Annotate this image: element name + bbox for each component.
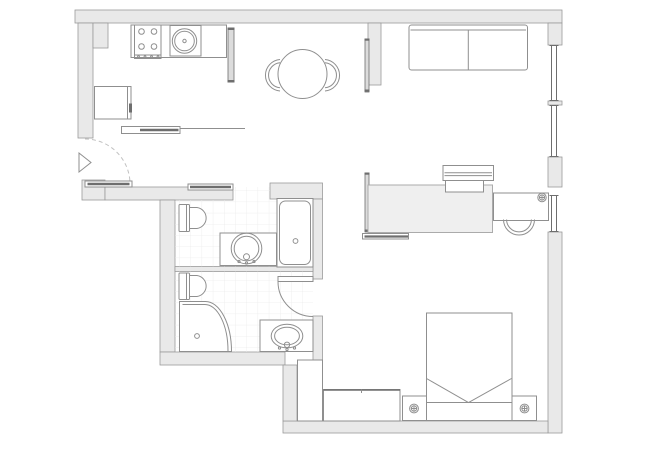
wall-step-left — [283, 365, 297, 421]
nightstand-left — [403, 396, 427, 421]
office-chair — [504, 220, 535, 236]
wall-bathroom-top-right — [270, 183, 323, 199]
wall-right-mid — [548, 157, 562, 187]
entrance-triangle-marker — [79, 153, 91, 172]
window-2 — [550, 106, 559, 157]
low-console — [363, 234, 409, 240]
toilet-tank — [179, 205, 190, 232]
bed-outline — [427, 313, 513, 421]
dining-area — [265, 50, 339, 99]
dresser-body — [324, 390, 401, 422]
vanity-counter — [260, 320, 313, 352]
bench-seat — [446, 181, 484, 193]
floor-plan-canvas — [0, 0, 650, 450]
refrigerator — [95, 87, 133, 120]
kitchen — [95, 25, 246, 134]
dresser — [324, 390, 401, 422]
windows — [550, 46, 559, 232]
bathtub-outer — [277, 199, 313, 268]
double-bed — [427, 313, 513, 421]
wall-bottom — [283, 421, 548, 433]
entry-door-swing-arc — [85, 139, 130, 184]
bathroom-1-doorway-tiles — [233, 187, 270, 200]
bathtub — [277, 199, 313, 268]
panel-cap-top — [365, 39, 370, 41]
closet — [298, 360, 323, 421]
vanity-2 — [260, 320, 313, 352]
bathroom-1-sliding-door — [188, 184, 233, 190]
refrigerator-handle — [129, 104, 132, 113]
wall-window-mullion — [548, 101, 562, 105]
wall-bathroom-bottom — [160, 352, 285, 365]
living-area — [409, 25, 528, 70]
sliding-panel — [365, 39, 369, 92]
kitchen-sliding-panel — [228, 28, 235, 83]
bedroom — [298, 313, 537, 421]
nightstand-right — [512, 396, 537, 421]
sliding-panel-upper — [365, 39, 370, 93]
desk-lamp — [538, 193, 546, 201]
console-shelf — [122, 127, 246, 134]
door-leaf — [278, 277, 313, 282]
wall-bathroom-right-lower — [313, 316, 323, 360]
bathroom-2 — [175, 272, 313, 353]
wall-right-lower — [548, 232, 562, 433]
floor-plan-page — [0, 0, 650, 450]
toilet-bowl — [190, 276, 207, 297]
window-3 — [550, 196, 559, 232]
panel-cap-top — [365, 173, 370, 175]
wall-right-top — [548, 23, 562, 45]
window-1 — [550, 46, 559, 101]
panel-cap-bottom — [365, 90, 370, 92]
refrigerator-body — [95, 87, 132, 120]
panel-cap-bottom — [228, 80, 235, 83]
wall-corner-top-left — [93, 23, 108, 48]
wall-bathroom-left — [160, 200, 175, 352]
vanity-1 — [220, 233, 277, 266]
wall-bathroom-right-upper — [313, 199, 323, 279]
toilet-bowl — [190, 208, 207, 229]
dining-table — [278, 50, 327, 99]
wall-partition-stub — [368, 23, 381, 85]
sliding-panel — [228, 28, 234, 82]
panel-cap-top — [228, 28, 235, 31]
wall-left-upper — [78, 23, 93, 138]
toilet-tank — [179, 273, 190, 300]
wall-top — [75, 10, 562, 23]
